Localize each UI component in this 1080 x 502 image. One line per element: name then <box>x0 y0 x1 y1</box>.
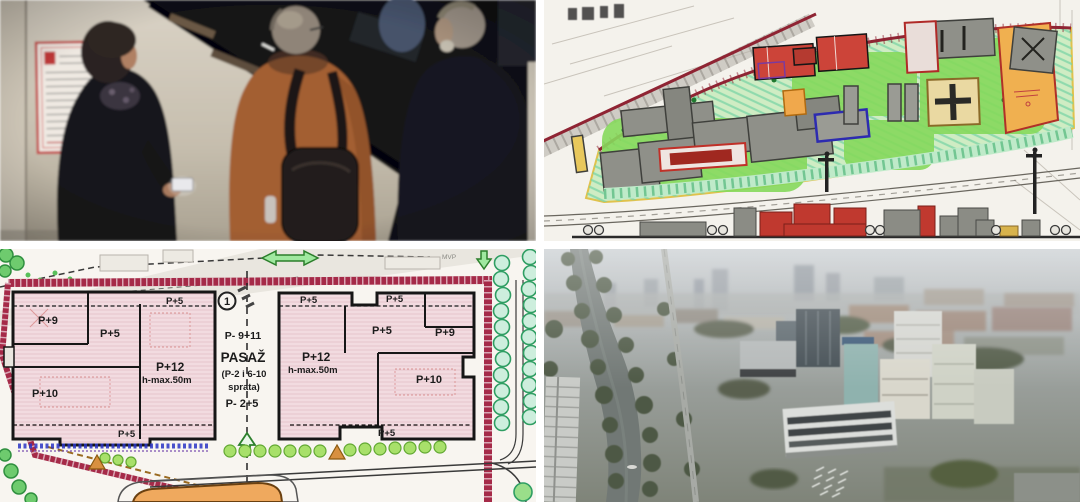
regulation-plan-svg: MVP <box>0 249 536 502</box>
label-p12-left: P+12 <box>156 360 185 374</box>
label-passage-levels-bottom: P- 2+5 <box>226 398 259 410</box>
label-p5-inner-left: P+5 <box>100 328 120 340</box>
photo-content <box>0 0 536 241</box>
building-block-right: P+5 P+5 P+5 P+9 P+12 h-max.50m P+10 P+5 <box>279 293 474 439</box>
label-p5-bottom-right: P+5 <box>378 428 396 439</box>
mvp-label: MVP <box>442 254 456 261</box>
label-p5-topedge-left: P+5 <box>166 296 184 307</box>
label-p10-left: P+10 <box>32 388 58 400</box>
label-p12-right: P+12 <box>302 350 331 364</box>
orange-small-building <box>783 89 806 116</box>
elevation-yellow-block <box>1000 226 1018 236</box>
regulation-plan: MVP <box>0 249 536 502</box>
stairwell-photo-svg <box>0 0 536 241</box>
label-p5-inner-right: P+5 <box>372 325 392 337</box>
red-outlined-low-building <box>659 143 746 171</box>
four-panel-collage: MVP <box>0 0 1080 502</box>
label-hmax-left: h-max.50m <box>142 375 192 386</box>
aerial-city-photo <box>544 249 1080 502</box>
blue-outlined-building <box>815 109 870 141</box>
label-p5-topedge-rb-left: P+5 <box>300 295 318 306</box>
label-passage-title: PASAŽ <box>221 350 266 365</box>
label-passage-note2: sprata) <box>228 382 260 393</box>
urban-site-plan <box>544 0 1080 241</box>
yellow-cross-building <box>927 78 980 126</box>
left-block-annex <box>4 347 14 367</box>
label-hmax-right: h-max.50m <box>288 365 338 376</box>
label-passage-levels-top: P- 9+11 <box>225 330 262 342</box>
vignette <box>0 0 536 241</box>
label-p9-right: P+9 <box>435 327 455 339</box>
label-p5-bottom-left: P+5 <box>118 429 136 440</box>
label-p10-right: P+10 <box>416 374 442 386</box>
site-plan-svg <box>544 0 1080 241</box>
red-outlined-building <box>905 21 939 73</box>
label-passage-note1: (P-2 i 6-10 <box>222 369 267 380</box>
building-block-left: P+9 P+5 P+5 P+12 h-max.50m P+10 P+5 <box>4 292 215 445</box>
marker-1-number: 1 <box>224 296 230 308</box>
aerial-photo-svg <box>544 249 1080 502</box>
photo-people-stairwell <box>0 0 536 241</box>
haze-overlay <box>544 249 1080 502</box>
label-p5-topedge-rb-right: P+5 <box>386 294 404 305</box>
label-p9-left: P+9 <box>38 315 58 327</box>
